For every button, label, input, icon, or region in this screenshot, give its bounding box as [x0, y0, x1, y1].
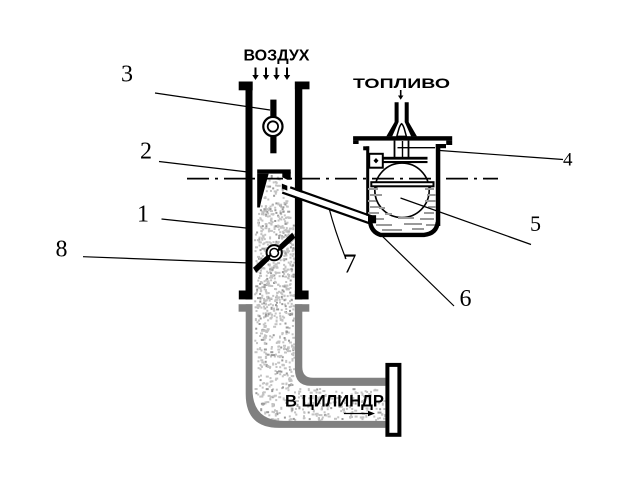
svg-text:1: 1 [137, 202, 149, 228]
svg-text:5: 5 [530, 211, 541, 236]
svg-text:В ЦИЛИНДР: В ЦИЛИНДР [285, 393, 384, 411]
svg-text:2: 2 [140, 139, 152, 165]
svg-text:3: 3 [121, 62, 133, 88]
svg-text:6: 6 [460, 286, 472, 312]
svg-text:ТОПЛИВО: ТОПЛИВО [353, 76, 450, 91]
svg-text:4: 4 [563, 150, 573, 171]
svg-text:8: 8 [56, 237, 68, 263]
svg-text:ВОЗДУХ: ВОЗДУХ [244, 48, 310, 65]
svg-text:7: 7 [343, 249, 357, 279]
